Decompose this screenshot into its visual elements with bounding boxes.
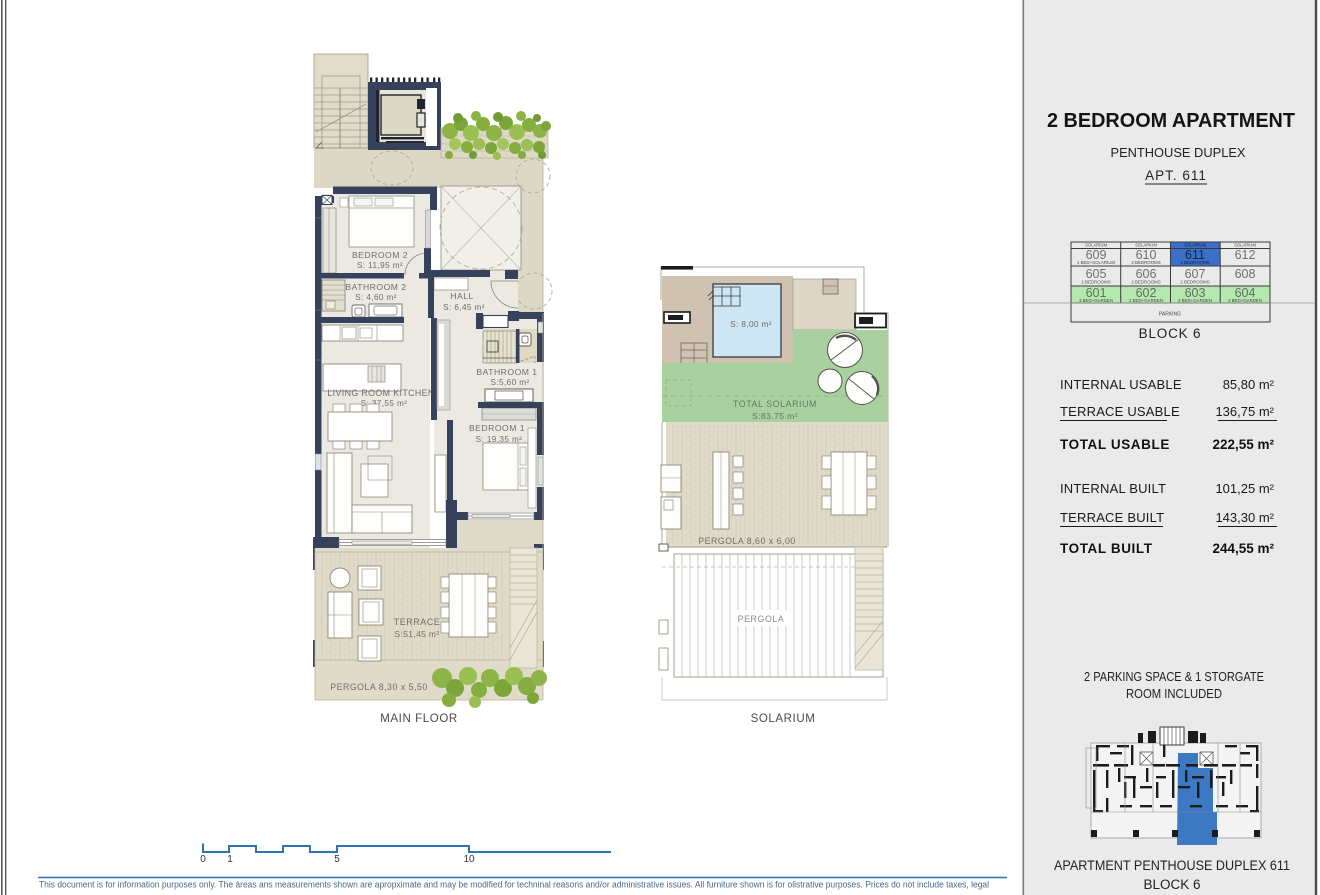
svg-text:PARKING: PARKING	[1159, 312, 1181, 318]
svg-text:244,55 m²: 244,55 m²	[1212, 541, 1274, 556]
svg-text:This document is for informat: This document is for information purpose…	[39, 880, 989, 891]
svg-text:3 BED+GARDEN: 3 BED+GARDEN	[1178, 298, 1212, 303]
svg-text:BATHROOM 2: BATHROOM 2	[345, 282, 406, 292]
svg-text:PERGOLA: PERGOLA	[738, 614, 785, 624]
svg-text:S:83.75 m²: S:83.75 m²	[752, 411, 798, 421]
svg-text:2 BED+GARDEN: 2 BED+GARDEN	[1129, 298, 1163, 303]
svg-text:SOLARIUM: SOLARIUM	[751, 713, 816, 725]
svg-text:PERGOLA 8,30 x 5,50: PERGOLA 8,30 x 5,50	[330, 682, 428, 692]
svg-text:2 BEDROOMS: 2 BEDROOMS	[1081, 280, 1110, 285]
svg-text:10: 10	[463, 854, 475, 865]
svg-text:S: 8,00 m²: S: 8,00 m²	[730, 320, 772, 329]
svg-text:TERRACE BUILT: TERRACE BUILT	[1060, 510, 1164, 525]
svg-text:143,30 m²: 143,30 m²	[1215, 510, 1274, 525]
svg-text:LIVING ROOM KITCHEN: LIVING ROOM KITCHEN	[327, 388, 434, 398]
svg-text:608: 608	[1235, 267, 1256, 281]
svg-text:MAIN FLOOR: MAIN FLOOR	[380, 713, 458, 725]
svg-text:2 PARKING SPACE & 1 STORGATE: 2 PARKING SPACE & 1 STORGATE	[1084, 670, 1264, 684]
svg-text:2 BEDROOMS: 2 BEDROOMS	[1180, 280, 1209, 285]
svg-text:HALL: HALL	[450, 291, 474, 301]
svg-text:2 BEDROOMS: 2 BEDROOMS	[1131, 260, 1160, 265]
svg-text:2 BEDROOMS: 2 BEDROOMS	[1131, 280, 1160, 285]
svg-text:2 BEDROOM APARTMENT: 2 BEDROOM APARTMENT	[1047, 109, 1295, 132]
svg-text:136,75 m²: 136,75 m²	[1215, 404, 1274, 419]
svg-text:TERRACE USABLE: TERRACE USABLE	[1060, 404, 1180, 419]
svg-text:SOLARIUM: SOLARIUM	[1085, 243, 1107, 248]
svg-text:222,55 m²: 222,55 m²	[1212, 437, 1274, 452]
svg-text:BEDROOM 2: BEDROOM 2	[352, 250, 408, 260]
svg-text:BATHROOM 1: BATHROOM 1	[476, 367, 537, 377]
svg-text:S: 6,45 m²: S: 6,45 m²	[443, 303, 485, 312]
svg-text:BEDROOM 1: BEDROOM 1	[469, 423, 525, 433]
svg-text:5: 5	[334, 854, 340, 865]
svg-text:APARTMENT PENTHOUSE DUPLEX 611: APARTMENT PENTHOUSE DUPLEX 611	[1054, 858, 1290, 873]
svg-text:APT. 611: APT. 611	[1145, 168, 1207, 183]
svg-text:0: 0	[200, 854, 206, 865]
svg-text:3 BED+GARDEN: 3 BED+GARDEN	[1228, 298, 1262, 303]
svg-text:PERGOLA 8,60 x 6,00: PERGOLA 8,60 x 6,00	[698, 536, 796, 546]
svg-text:3 BED+GARDEN: 3 BED+GARDEN	[1079, 298, 1113, 303]
svg-text:INTERNAL USABLE: INTERNAL USABLE	[1060, 377, 1182, 392]
svg-text:SOLARIUM: SOLARIUM	[1184, 243, 1206, 248]
svg-text:PENTHOUSE DUPLEX: PENTHOUSE DUPLEX	[1111, 145, 1246, 160]
svg-text:2 BEDROOMS: 2 BEDROOMS	[1180, 260, 1209, 265]
svg-text:SOLARIUM: SOLARIUM	[1234, 243, 1256, 248]
svg-text:TERRACE: TERRACE	[394, 617, 441, 627]
svg-text:S:51,45 m²: S:51,45 m²	[395, 629, 440, 639]
svg-text:S: 4,60 m²: S: 4,60 m²	[355, 293, 397, 302]
svg-text:1 BED+SOLARIUM: 1 BED+SOLARIUM	[1077, 260, 1116, 265]
svg-text:S:5,60 m²: S:5,60 m²	[490, 378, 529, 387]
svg-text:101,25 m²: 101,25 m²	[1215, 481, 1274, 496]
svg-text:TOTAL USABLE: TOTAL USABLE	[1060, 437, 1170, 452]
svg-text:1: 1	[227, 854, 233, 865]
svg-text:85,80 m²: 85,80 m²	[1223, 377, 1275, 392]
svg-text:TOTAL BUILT: TOTAL BUILT	[1060, 541, 1153, 556]
svg-text:S: 11,95 m²: S: 11,95 m²	[357, 261, 403, 270]
svg-text:ROOM INCLUDED: ROOM INCLUDED	[1126, 687, 1222, 701]
svg-text:BLOCK 6: BLOCK 6	[1139, 326, 1202, 341]
svg-text:TOTAL SOLARIUM: TOTAL SOLARIUM	[733, 399, 817, 409]
svg-text:INTERNAL BUILT: INTERNAL BUILT	[1060, 481, 1166, 496]
svg-text:612: 612	[1235, 248, 1256, 262]
svg-text:BLOCK 6: BLOCK 6	[1143, 877, 1200, 892]
svg-text:SOLARIUM: SOLARIUM	[1135, 243, 1157, 248]
